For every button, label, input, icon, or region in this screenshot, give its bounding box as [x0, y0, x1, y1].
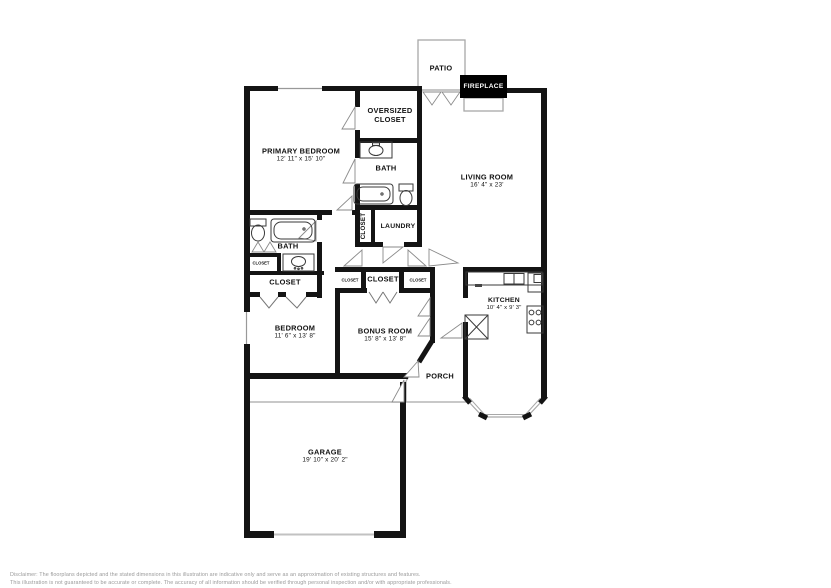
room-label-bath2: BATH — [278, 241, 299, 250]
room-label-bonus-closet-left: CLOSET — [342, 277, 359, 282]
primary-bath-sink — [360, 142, 392, 158]
patio-door-left — [423, 92, 441, 105]
room-label-hall-closet: CLOSET — [360, 213, 368, 240]
room-label-primary-bedroom: PRIMARY BEDROOM 12' 11" x 15' 10" — [262, 146, 340, 163]
bath2-door — [299, 221, 316, 241]
bedroom-closet-vdoor-1 — [260, 297, 278, 308]
garage-side-door — [392, 380, 404, 402]
room-label-bonus-closet-center: CLOSET — [367, 274, 398, 283]
room-label-primary-bath: BATH — [376, 163, 397, 172]
floorplan-drawing — [0, 0, 831, 588]
room-label-bonus-room: BONUS ROOM 15' 8" x 13' 8" — [358, 326, 412, 343]
disclaimer-line-2: This illustration is not guaranteed to b… — [10, 579, 825, 587]
bonus-closet-vdoor-1 — [369, 292, 383, 303]
hall-closet-door-b — [264, 242, 276, 252]
windows — [247, 89, 323, 345]
kitchen-fridge — [528, 273, 543, 292]
bonus-angled-wall — [419, 341, 432, 362]
bedroom-closet-vdoor-2 — [286, 297, 306, 308]
bonus-closet-vdoor-2 — [383, 292, 397, 303]
primary-bedroom-door — [337, 196, 352, 210]
kitchen-pantry — [465, 315, 488, 339]
room-label-bonus-closet-right: CLOSET — [410, 277, 427, 282]
primary-bath-toilet — [399, 184, 413, 206]
kitchen-stove — [527, 306, 543, 333]
room-label-bedroom: BEDROOM 11' 6" x 13' 8" — [274, 323, 315, 340]
hearth-outline — [464, 98, 503, 111]
bath2-sink — [283, 254, 314, 271]
room-label-bedroom-closet: CLOSET — [269, 277, 300, 286]
bay-window — [464, 396, 546, 418]
oversized-closet-door — [342, 107, 355, 129]
fireplace-label: FIREPLACE — [460, 75, 507, 98]
room-label-oversized-closet: OVERSIZED CLOSET — [360, 106, 420, 125]
kitchen-door — [441, 323, 462, 338]
room-label-laundry: LAUNDRY — [381, 223, 416, 231]
room-label-porch: PORCH — [426, 371, 454, 380]
bath2-toilet — [250, 219, 266, 241]
room-label-living-room: LIVING ROOM 16' 4" x 23' — [461, 172, 513, 189]
laundry-door — [383, 247, 403, 263]
room-label-hall-closet-small: CLOSET — [253, 260, 270, 265]
patio-door-right — [442, 92, 460, 105]
kitchen-counter — [466, 272, 542, 287]
room-label-patio: PATIO — [430, 63, 453, 72]
bonus-window-swing-1 — [418, 298, 430, 316]
bonus-closet-right-door — [408, 250, 426, 266]
bonus-closet-left-door — [344, 250, 362, 266]
floorplan-page: FIREPLACE PATIO OVERSIZED CLOSET PRIMARY… — [0, 0, 831, 588]
hall-closet-door-a — [252, 242, 264, 252]
disclaimer-text: Disclaimer: The floorplans depicted and … — [10, 571, 825, 587]
room-label-kitchen: KITCHEN 10' 4" x 9' 3" — [486, 297, 521, 313]
disclaimer-line-1: Disclaimer: The floorplans depicted and … — [10, 571, 825, 579]
bonus-window-swing-2 — [418, 318, 430, 336]
entry-door — [404, 361, 419, 377]
primary-bath-door — [343, 159, 355, 183]
room-label-garage: GARAGE 19' 10" x 20' 2" — [302, 447, 347, 464]
hall-living-door — [429, 249, 458, 266]
